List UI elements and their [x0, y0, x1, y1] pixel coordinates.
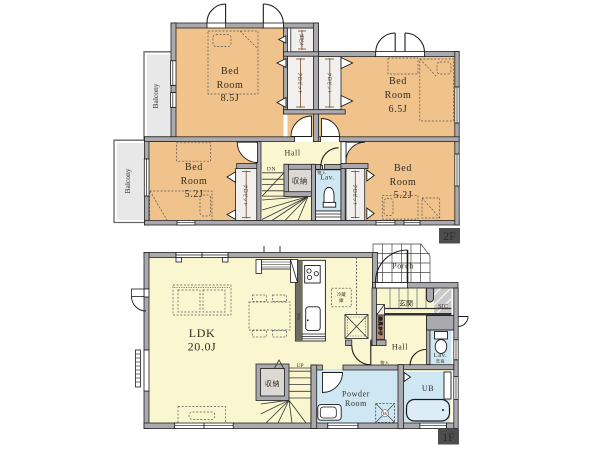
svg-text:洗面: 洗面	[436, 358, 445, 364]
svg-text:物入: 物入	[317, 169, 326, 175]
svg-text:DN: DN	[267, 167, 276, 173]
svg-text:Bed: Bed	[221, 66, 239, 77]
svg-text:クロゼット: クロゼット	[326, 72, 333, 94]
svg-text:UB: UB	[422, 384, 434, 393]
svg-text:玄関: 玄関	[399, 299, 413, 308]
svg-text:Room: Room	[217, 80, 244, 91]
svg-text:8.5J: 8.5J	[221, 93, 240, 104]
svg-text:Room: Room	[385, 90, 412, 101]
svg-text:20.0J: 20.0J	[188, 340, 217, 354]
svg-text:UP: UP	[296, 363, 303, 369]
svg-text:Bed: Bed	[185, 162, 203, 173]
svg-text:収納: 収納	[292, 176, 308, 186]
svg-text:1F: 1F	[442, 430, 455, 444]
svg-text:Hall: Hall	[285, 149, 301, 158]
svg-text:Bed: Bed	[389, 76, 407, 87]
svg-text:Room: Room	[345, 399, 367, 408]
svg-text:Room: Room	[390, 177, 417, 188]
svg-text:Bed: Bed	[394, 163, 412, 174]
svg-text:クロゼット: クロゼット	[351, 184, 358, 206]
svg-text:Porch: Porch	[392, 262, 414, 271]
svg-text:クロゼット: クロゼット	[242, 184, 249, 206]
svg-text:姿見かけ: 姿見かけ	[377, 317, 384, 336]
svg-text:冷蔵: 冷蔵	[337, 291, 346, 298]
svg-text:6.5J: 6.5J	[389, 104, 408, 115]
svg-text:Powder: Powder	[342, 390, 370, 399]
svg-text:Room: Room	[181, 176, 208, 187]
svg-text:庫: 庫	[339, 297, 344, 304]
svg-text:5.2J: 5.2J	[394, 190, 413, 201]
svg-text:Balcony: Balcony	[123, 168, 132, 193]
svg-text:2F: 2F	[443, 229, 456, 243]
svg-text:収納: 収納	[265, 379, 280, 388]
svg-text:LDK: LDK	[189, 326, 215, 340]
svg-text:W: W	[382, 412, 388, 418]
svg-text:5.2J: 5.2J	[185, 189, 204, 200]
svg-text:物入: 物入	[380, 359, 389, 365]
svg-text:クロゼット: クロゼット	[297, 72, 304, 94]
svg-text:Sink: Sink	[296, 312, 301, 321]
svg-text:クロゼット: クロゼット	[298, 33, 305, 47]
svg-text:Balcony: Balcony	[151, 83, 160, 108]
svg-text:Hall: Hall	[392, 343, 408, 352]
